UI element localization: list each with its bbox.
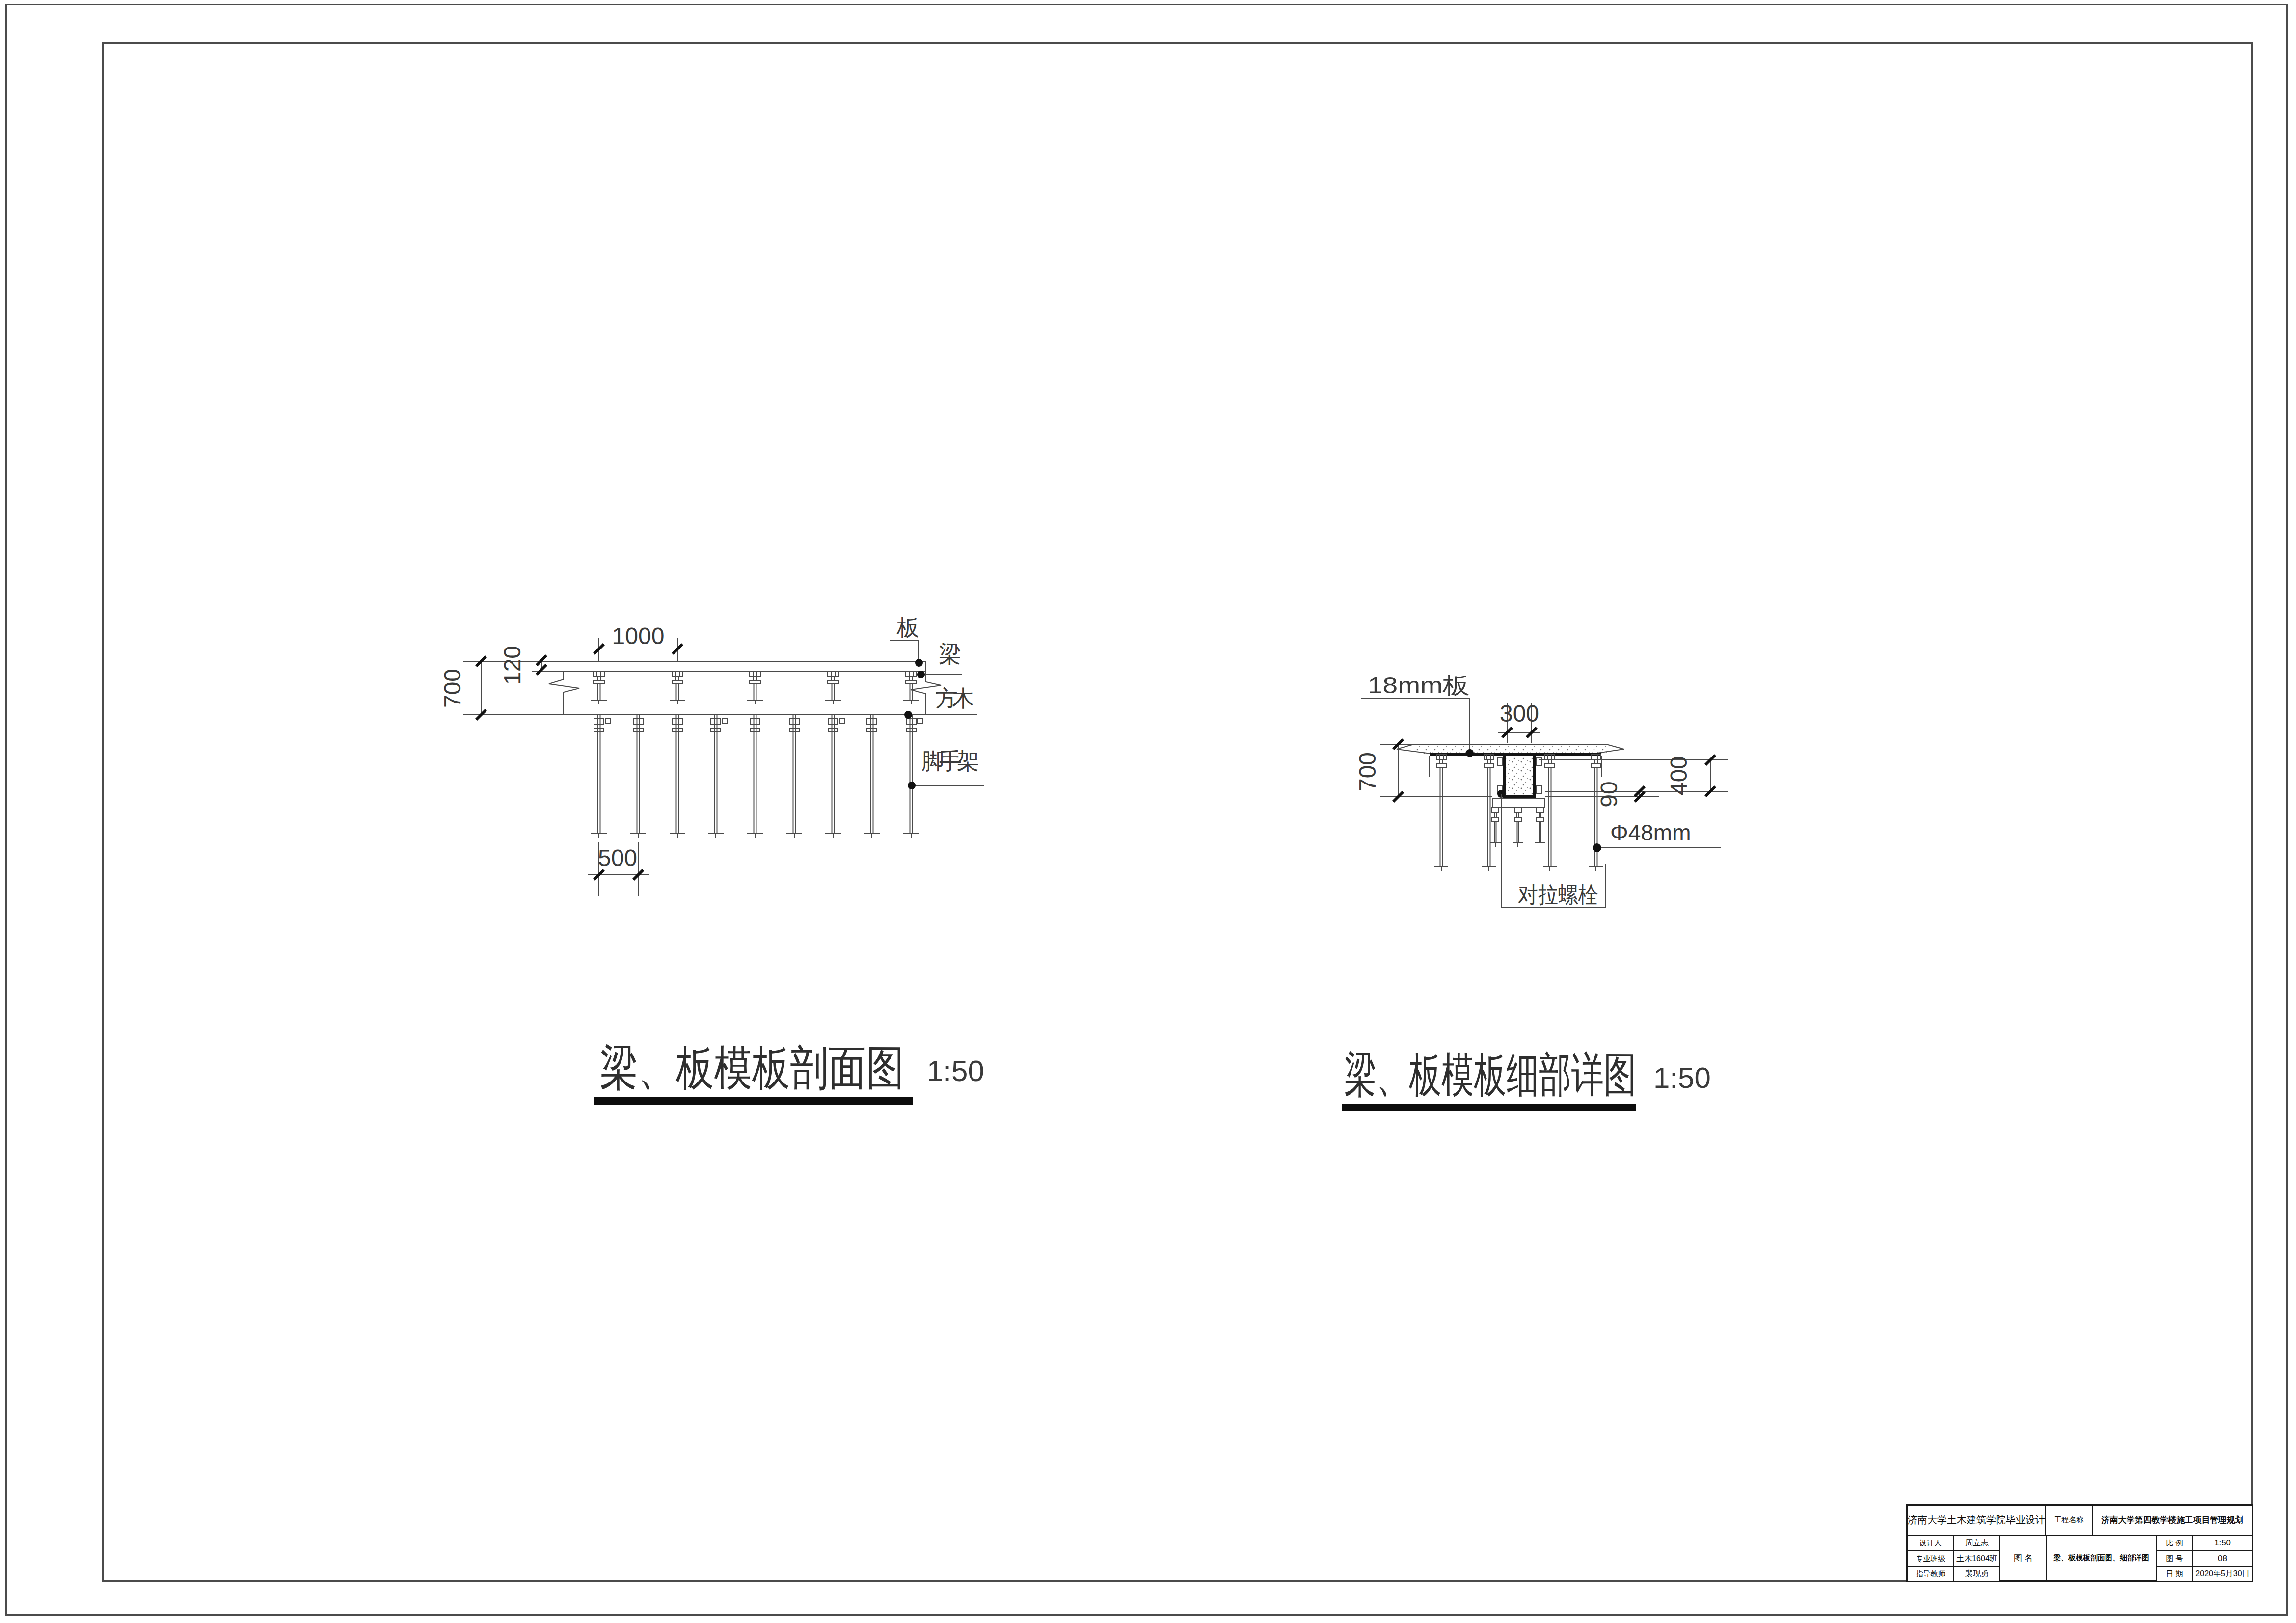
- scaffold-post: [670, 715, 685, 838]
- sheet-inner-border: [102, 42, 2253, 1582]
- dim-700-detail-text: 700: [1354, 752, 1380, 791]
- designer-value: 周立志: [1954, 1536, 2000, 1551]
- scaffold-post: [1434, 755, 1448, 871]
- shore-post: [670, 672, 685, 704]
- section-title-text: 梁、板模板剖面图: [600, 1041, 904, 1094]
- scaffold-posts: [591, 715, 922, 838]
- section-title: 梁、板模板剖面图 1:50: [594, 1041, 984, 1105]
- detail-drawing: 700 300 18mm板 400: [1335, 658, 1757, 1119]
- section-scale-text: 1:50: [927, 1055, 984, 1087]
- dim-300-text: 300: [1500, 701, 1539, 727]
- advisor-label: 指导教师: [1908, 1567, 1954, 1581]
- advisor-value: 裴现勇: [1954, 1567, 2000, 1581]
- dim-120: 120: [499, 646, 546, 685]
- dim-700-left: 700: [439, 656, 486, 720]
- class-label: 专业班级: [1908, 1551, 1954, 1567]
- label-tie-bolt-text: 对拉螺栓: [1518, 882, 1598, 907]
- scaffold-post: [747, 715, 763, 838]
- scaffold-post: [903, 715, 919, 838]
- detail-title-text: 梁、板模板细部详图: [1344, 1048, 1636, 1101]
- concrete-beam-fill: [1506, 754, 1533, 796]
- date-value: 2020年5月30日: [2193, 1567, 2252, 1581]
- label-plywood-text: 18mm板: [1368, 673, 1470, 698]
- clamp-bolt: [1535, 808, 1545, 847]
- clamp-bolt: [1490, 808, 1501, 847]
- scale-label: 比 例: [2157, 1536, 2193, 1551]
- u-head-shores: [591, 672, 919, 704]
- title-block-project-label: 工程名称: [2046, 1506, 2093, 1536]
- shore-post: [747, 672, 763, 704]
- drawing-name-label: 图 名: [2000, 1536, 2047, 1581]
- dim-500: 500: [588, 842, 649, 896]
- detail-title: 梁、板模板细部详图 1:50: [1342, 1048, 1711, 1111]
- label-beam-text: 梁: [939, 641, 961, 667]
- label-pipe-text: Φ48mm: [1610, 820, 1691, 845]
- label-slab-text: 板: [896, 615, 919, 640]
- dim-90-text: 90: [1596, 781, 1622, 807]
- label-slab: 板: [890, 615, 923, 667]
- scaffold-post: [1543, 755, 1557, 871]
- scaffold-post: [825, 715, 841, 838]
- right-extension-lines: [1539, 760, 1728, 797]
- label-scaffold: 脚手架: [908, 748, 984, 789]
- title-block-project-name: 济南大学第四教学楼施工项目管理规划: [2093, 1506, 2252, 1536]
- drawing-sheet: 1000 120 700 500 板: [0, 0, 2296, 1623]
- date-label: 日 期: [2157, 1567, 2193, 1581]
- drawing-name-value: 梁、板模板剖面图、细部详图: [2047, 1536, 2157, 1581]
- label-scaffold-text: 脚手架: [921, 748, 979, 774]
- dim-700-text: 700: [439, 669, 465, 708]
- label-pipe: Φ48mm: [1593, 820, 1721, 852]
- scaffold-post: [786, 715, 802, 838]
- number-label: 图 号: [2157, 1551, 2193, 1567]
- title-block: 济南大学土木建筑学院毕业设计 工程名称 济南大学第四教学楼施工项目管理规划 设计…: [1906, 1504, 2253, 1582]
- shore-post: [903, 672, 919, 704]
- scaffold-post: [591, 715, 607, 838]
- scaffold-post: [1589, 755, 1603, 871]
- label-beam: 梁: [917, 641, 962, 678]
- detail-scale-text: 1:50: [1653, 1061, 1711, 1094]
- title-block-school: 济南大学土木建筑学院毕业设计: [1908, 1506, 2046, 1536]
- dim-120-text: 120: [499, 646, 525, 685]
- scaffold-post: [708, 715, 724, 838]
- dim-400: 400: [1666, 755, 1715, 796]
- dim-500-text: 500: [598, 845, 637, 871]
- beam-clamp: [1490, 798, 1545, 847]
- class-value: 土木1604班: [1954, 1551, 2000, 1567]
- scaffold-post: [630, 715, 646, 838]
- dim-300: 300: [1498, 701, 1540, 743]
- section-drawing: 1000 120 700 500 板: [442, 609, 1011, 1129]
- designer-label: 设计人: [1908, 1536, 1954, 1551]
- label-timber-text: 方木: [935, 685, 974, 711]
- scale-value: 1:50: [2193, 1536, 2252, 1551]
- scaffold-post: [864, 715, 880, 838]
- dim-1000-text: 1000: [612, 623, 665, 649]
- dim-400-text: 400: [1666, 756, 1692, 795]
- shore-post: [825, 672, 841, 704]
- clamp-bolt: [1513, 808, 1523, 847]
- number-value: 08: [2193, 1551, 2252, 1567]
- dim-90: 90: [1596, 781, 1645, 807]
- dim-1000: 1000: [590, 623, 686, 661]
- shore-post: [591, 672, 607, 704]
